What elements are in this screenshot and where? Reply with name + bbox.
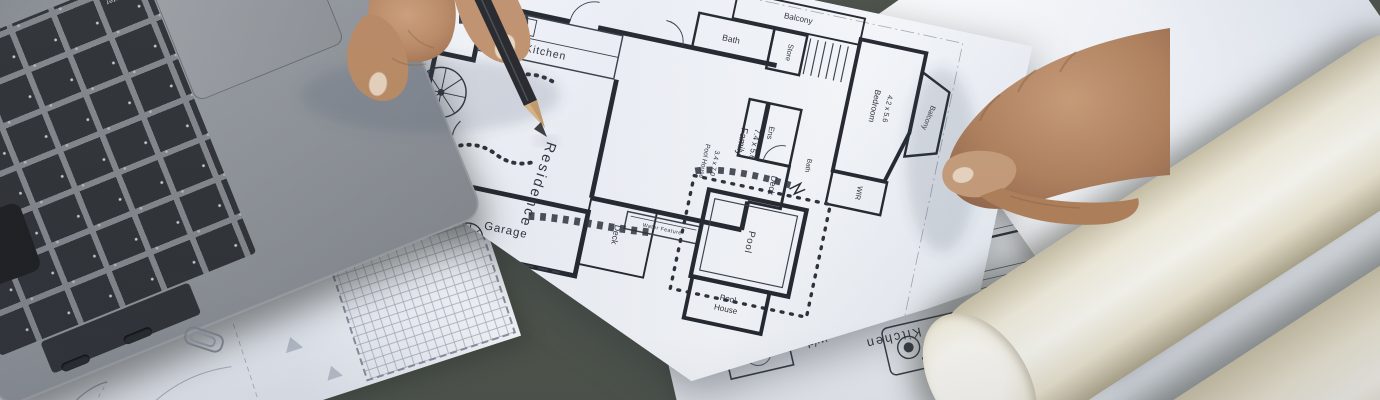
hands-overlay	[0, 0, 1380, 400]
hand-left-with-pencil	[300, 0, 560, 145]
architect-desk-photo: w/d 1.9m [6.23'] Kitchen 3.5m [11.48']	[0, 0, 1380, 400]
hand-right	[906, 28, 1170, 252]
